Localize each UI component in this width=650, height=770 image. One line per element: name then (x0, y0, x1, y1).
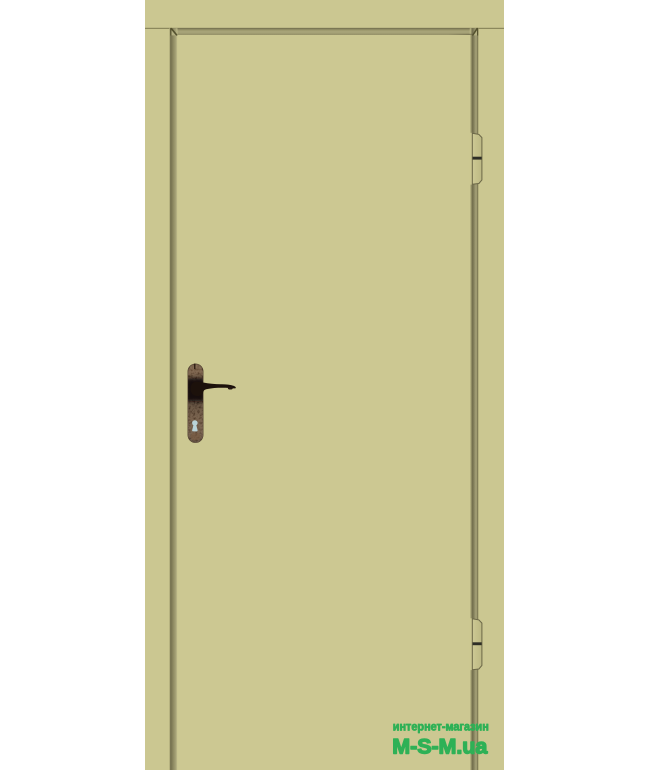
svg-text:интернет-магазин: интернет-магазин (393, 721, 489, 734)
svg-text:M-S-M.ua: M-S-M.ua (392, 735, 488, 759)
